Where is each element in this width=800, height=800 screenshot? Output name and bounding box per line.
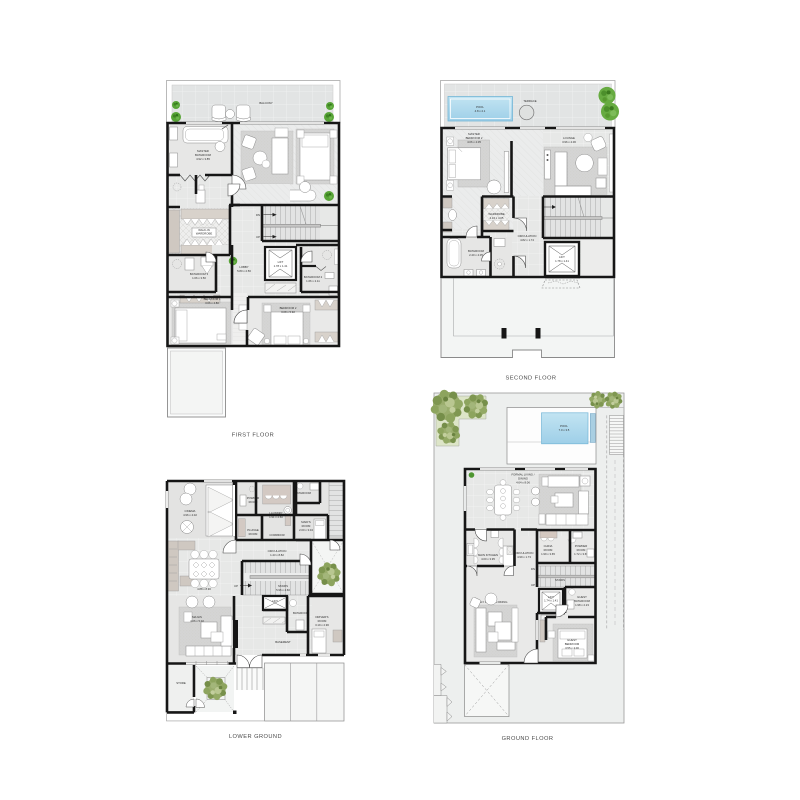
svg-text:DN: DN [531,567,535,571]
svg-text:5.96 x 4.60: 5.96 x 4.60 [276,588,290,592]
svg-text:BASEMENT: BASEMENT [275,640,291,644]
svg-text:1.78 x 1.41: 1.78 x 1.41 [274,264,288,268]
svg-text:4.96 x 4.02: 4.96 x 4.02 [183,513,197,517]
svg-text:STORE: STORE [176,681,186,685]
svg-text:1.66 x 3.50: 1.66 x 3.50 [192,276,206,280]
svg-text:5.80 x 2.56: 5.80 x 2.56 [237,269,251,273]
svg-text:3.19 x 2.96: 3.19 x 2.96 [315,623,329,627]
svg-text:1.78 x 1.41: 1.78 x 1.41 [555,259,569,263]
svg-text:1.99 x 3.65: 1.99 x 3.65 [541,552,555,556]
svg-text:ROOM: ROOM [249,532,258,536]
svg-text:1.66 x 2.11: 1.66 x 2.11 [306,279,320,283]
svg-text:4.8 x 2.1: 4.8 x 2.1 [475,109,486,113]
svg-text:TERRACE: TERRACE [523,99,536,103]
svg-text:BALCONY: BALCONY [259,101,273,105]
svg-text:3.66 x 4.80: 3.66 x 4.80 [205,301,219,305]
svg-text:GROUND FLOOR: GROUND FLOOR [502,736,554,742]
svg-text:7.0 x 3.5: 7.0 x 3.5 [559,428,570,432]
svg-text:CORRIDOR: CORRIDOR [269,533,284,537]
svg-text:UP: UP [256,235,260,239]
svg-text:1.43 x 8.82: 1.43 x 8.82 [270,553,284,557]
svg-text:3.96 x 4.06: 3.96 x 4.06 [562,140,576,144]
svg-text:4.88 x 8.90: 4.88 x 8.90 [197,587,211,591]
svg-text:2.40 x 4.05: 2.40 x 4.05 [469,253,483,257]
svg-text:4.64 x 8.06: 4.64 x 8.06 [516,481,530,485]
svg-text:WARDROBE: WARDROBE [196,232,213,236]
svg-text:1.72 x 3.65: 1.72 x 3.65 [574,552,588,556]
svg-text:3.55 x 4.00: 3.55 x 4.00 [565,646,579,650]
svg-text:BATHROOM: BATHROOM [295,491,312,495]
svg-text:2.16 x 4.05: 2.16 x 4.05 [490,216,504,220]
svg-text:4.06 x 5.02: 4.06 x 5.02 [190,619,204,623]
svg-text:1.98 x 2.23: 1.98 x 2.23 [575,603,589,607]
svg-text:UP: UP [234,584,238,588]
svg-text:LIFT: LIFT [272,599,278,603]
svg-text:2.00 x 3.04: 2.00 x 3.04 [299,528,313,532]
svg-text:4.06 x 4.05: 4.06 x 4.05 [467,140,481,144]
svg-text:4.99 x 1.73: 4.99 x 1.73 [517,555,531,559]
svg-text:LOWER GROUND: LOWER GROUND [229,734,282,740]
svg-text:4.82 x 1.74: 4.82 x 1.74 [520,238,534,242]
svg-text:4.00 x 3.95: 4.00 x 3.95 [481,557,495,561]
svg-text:FIRST FLOOR: FIRST FLOOR [232,433,274,439]
svg-text:DN: DN [256,213,260,217]
svg-text:3.08 x 5.92: 3.08 x 5.92 [281,310,295,314]
svg-text:SECOND FLOOR: SECOND FLOOR [506,376,557,382]
svg-text:1.74 x 1.41: 1.74 x 1.41 [544,599,558,603]
svg-text:STAIRS: STAIRS [555,578,565,582]
svg-text:UP: UP [531,583,535,587]
svg-text:4.92 x 3.85: 4.92 x 3.85 [196,157,210,161]
